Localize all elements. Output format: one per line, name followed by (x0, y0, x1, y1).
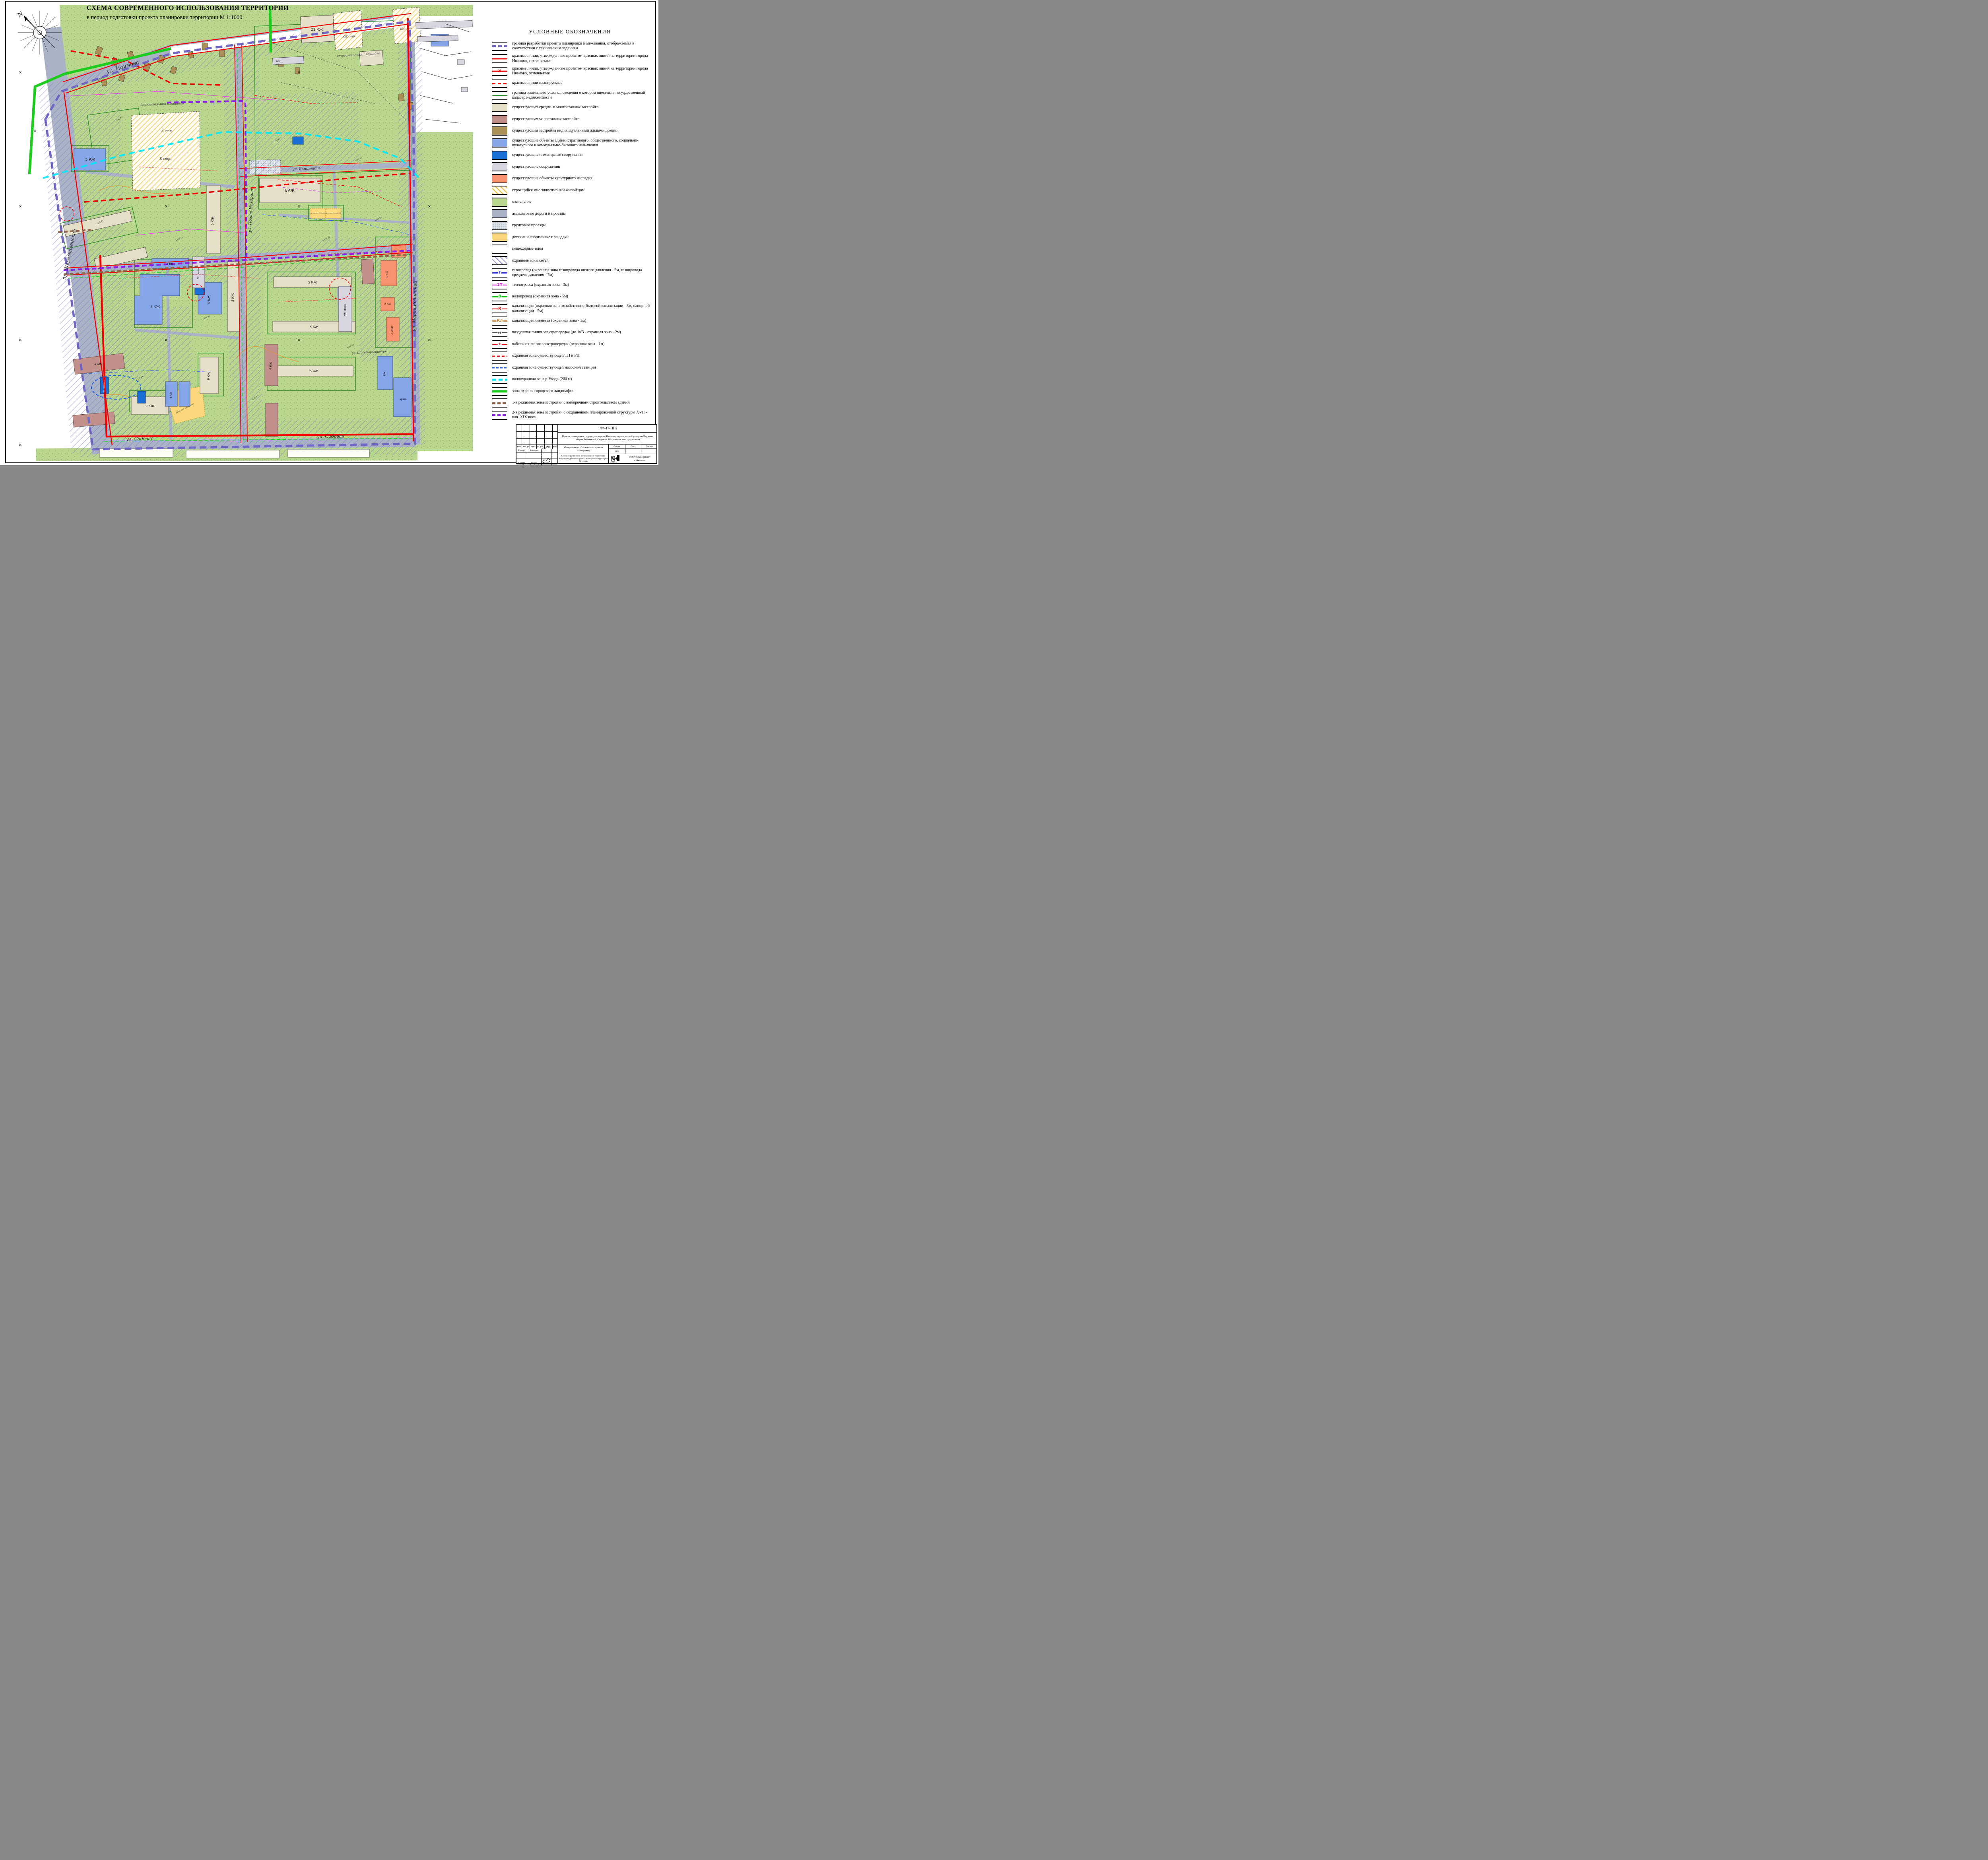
col-list: Лист (530, 445, 536, 449)
name-cell: Седова (527, 461, 542, 464)
red-line-kept-swatch (492, 54, 507, 63)
legend-item: существующая средне- и многоэтажная заст… (492, 103, 654, 112)
legend-item: охранная зона существующей ТП и РП (492, 351, 654, 361)
legend-item: пешеходные зоны (492, 245, 654, 254)
role-cell: ГИП (516, 464, 527, 465)
legend-label: красные линии, утвержденные проектом кра… (512, 66, 654, 76)
legend-label: теплотрасса (охранная зона - 3м) (512, 283, 569, 287)
legend-item: зона охраны городского ландшафта (492, 387, 654, 396)
legend-label: кабельная линия электропередач (охранная… (512, 342, 604, 347)
legend-label: грунтовые проезды (512, 223, 546, 228)
scheme-name: Схема современного использования террито… (558, 454, 609, 464)
project-name: Проект планировки территории города Иван… (558, 433, 657, 445)
water-protection-zone-swatch (492, 375, 507, 384)
asphalt-roads-swatch (492, 209, 507, 218)
company-city: г. Иваново (622, 459, 657, 462)
document-number: 1/04-17-ПП2 (558, 425, 657, 433)
landscape-zone-swatch (492, 387, 507, 396)
map-label: бет. (276, 60, 282, 63)
grid-cross: × (19, 70, 22, 75)
legend-label: канализация (охранная зона хозяйственно-… (512, 304, 654, 314)
grid-cross: × (165, 338, 168, 342)
legend-item: грунтовые проезды (492, 221, 654, 230)
sewer-swatch: К (492, 304, 507, 313)
grid-cross: × (19, 443, 22, 447)
legend-label: детские и спортивные площадки (512, 235, 569, 240)
col-koluch: Кол. уч (522, 445, 530, 449)
legend-item: детские и спортивные площадки (492, 233, 654, 242)
company-logo: СлавПроект (610, 455, 622, 463)
cable-power-swatch: + (492, 340, 507, 349)
legend-item: 2Ттеплотрасса (охранная зона - 3м) (492, 280, 654, 289)
stage-value: ПП (609, 449, 625, 454)
legend-label: 1-я режимная зона застройки с выборочным… (512, 400, 630, 405)
map-label: КН гараж (197, 268, 200, 279)
materials-label: Материалы по обоснованию проекта планиро… (558, 445, 609, 454)
legend-label: озеленение (512, 200, 532, 204)
heritage-swatch (492, 174, 507, 183)
sheets-value (641, 449, 657, 454)
map-label: КН насосная (103, 381, 105, 392)
legend-item: Клканализация ливневая (охранная зона - … (492, 316, 654, 326)
overhead-power-swatch: ↔ (492, 328, 507, 337)
legend-item: красные линии, утвержденные проектом кра… (492, 66, 654, 76)
sheets-label: Листов (641, 445, 657, 448)
legend-label: 2-я режимная зона застройки с сохранение… (512, 410, 654, 420)
legend-label: пешеходные зоны (512, 247, 543, 251)
legend-item: Кканализация (охранная зона хозяйственно… (492, 304, 654, 314)
legend-item: озеленение (492, 198, 654, 207)
map-label: 2 КЖ (384, 303, 391, 306)
sheet-label: Лист (625, 445, 642, 448)
compass-rose-icon (18, 11, 62, 54)
map-label: 4 КЖ (170, 392, 173, 398)
legend-label: охранная зона существующей насосной стан… (512, 365, 596, 370)
legend-item: существующие инженерные сооружения (492, 151, 654, 160)
legend-label: охранные зоны сетей (512, 258, 549, 263)
mid-rise-swatch (492, 103, 507, 112)
map-label: 5 КЖ (85, 158, 95, 162)
project-boundary-swatch (492, 42, 507, 51)
gas-symbol: Г (498, 271, 501, 275)
legend-label: граница земельного участка, сведения о к… (512, 91, 654, 101)
heat-symbol: 2Т (497, 283, 503, 287)
name-cell: Качалова (527, 449, 542, 452)
map-label: КЖ (383, 371, 386, 376)
map-label: детская площадка (326, 212, 342, 214)
playgrounds-swatch (492, 233, 507, 242)
company-logo-icon (610, 455, 622, 462)
sheet-value (625, 449, 642, 454)
legend-label: существующие сооружения (512, 165, 560, 169)
water-pipeline-swatch: В (492, 292, 507, 301)
legend-label: существующие инженерные сооружения (512, 153, 582, 157)
title-block: Изм. Кол. уч Лист № док. Подп. Дата Разр… (516, 424, 657, 464)
map-label: 21 КЖ (311, 28, 323, 32)
legend-item: существующие объекты административного, … (492, 138, 654, 148)
map-label: 5 КЖ (211, 216, 215, 225)
greenery-swatch (492, 198, 507, 207)
legend-label: строящийся многоквартирный жилой дом (512, 188, 584, 193)
legend-label: существующая застройка индивидуальными ж… (512, 128, 619, 133)
legend-item: 1-я режимная зона застройки с выборочным… (492, 398, 654, 408)
col-ndok: № док. (537, 445, 545, 449)
legend-label: водоохранная зона р.Уводь (200 м) (512, 377, 572, 382)
grid-cross: × (428, 338, 431, 342)
map-label: ул. Садовая (316, 433, 344, 439)
map-label: КН гаражи (344, 304, 346, 316)
legend-item: существующая малоэтажная застройка (492, 115, 654, 124)
col-data: Дата (553, 445, 557, 449)
legend-item: существующие объекты культурного наследи… (492, 174, 654, 183)
grid-cross: × (165, 204, 168, 209)
legend-label: воздушная линия электропередач (до 1кВ -… (512, 330, 621, 335)
legend-label: канализация ливневая (охранная зона - 3м… (512, 318, 586, 323)
stage-label: Стадия (609, 445, 625, 448)
role-cell: Н.контр. (516, 461, 527, 464)
under-construction-swatch (492, 186, 507, 195)
overhead-power-symbol: ↔ (497, 330, 502, 335)
grid-cross: × (19, 204, 22, 209)
legend-item: асфальтовые дороги и проезды (492, 209, 654, 218)
map-label: 5 КЖ (231, 293, 235, 302)
legend-label: охранная зона существующей ТП и РП (512, 353, 580, 358)
legend-item: водоохранная зона р.Уводь (200 м) (492, 375, 654, 384)
legend-label: граница разработки проекта планировки и … (512, 41, 654, 51)
map-label: 4 КЖ (269, 362, 273, 370)
name-cell: Подобный (527, 464, 542, 465)
logo-text: СлавПроект (610, 462, 617, 464)
legend-item: Ггазопровод (охранная зона газопровода н… (492, 268, 654, 278)
ground-roads-swatch (492, 221, 507, 230)
stage-grid: Стадия Лист Листов ПП (609, 445, 657, 454)
map-label: 9 КЖ (207, 372, 211, 380)
title-block-revision-grid: Изм. Кол. уч Лист № док. Подп. Дата Разр… (516, 425, 558, 463)
map-label: 5 КЖ (308, 281, 317, 284)
legend-label: существующие объекты культурного наследи… (512, 176, 592, 181)
map-label: К стр. (161, 129, 173, 133)
page-title: СХЕМА СОВРЕМЕННОГО ИСПОЛЬЗОВАНИЯ ТЕРРИТО… (87, 4, 309, 12)
map-label: спортивная площадка (309, 212, 327, 214)
map-label: 5 КЖ (310, 369, 318, 373)
map-label: 2 КН (167, 262, 173, 266)
legend-item: Вводопровод (охранная зона - 5м) (492, 292, 654, 301)
map-label: 3 КЖ (150, 305, 160, 309)
cable-power-symbol: + (498, 342, 502, 346)
grid-cross: × (297, 70, 301, 75)
map-label: 9 КЖ (146, 404, 154, 408)
storm-sewer-swatch: Кл (492, 316, 507, 326)
map-label: К стр. (159, 157, 171, 161)
legend-heading: УСЛОВНЫЕ ОБОЗНАЧЕНИЯ (504, 29, 635, 35)
legend-item: существующая застройка индивидуальными ж… (492, 126, 654, 136)
grid-cross: × (428, 204, 431, 209)
legend-label: водопровод (охранная зона - 5м) (512, 294, 568, 299)
map-label: 2 СМЖ (391, 326, 394, 335)
individual-housing-swatch (492, 126, 507, 136)
grid-cross: × (297, 204, 301, 209)
low-rise-swatch (492, 115, 507, 124)
page-subtitle: в период подготовки проекта планировки т… (87, 14, 309, 21)
legend-label: существующая средне- и многоэтажная заст… (512, 105, 598, 110)
map-label: храм (400, 398, 406, 401)
legend-item: существующие сооружения (492, 162, 654, 171)
grid-cross: × (19, 338, 22, 342)
legend-item: граница земельного участка, сведения о к… (492, 91, 654, 101)
water-symbol: В (498, 295, 501, 299)
legend-item: охранная зона существующей насосной стан… (492, 363, 654, 373)
network-protection-swatch (492, 256, 507, 265)
map-label: 3 КЖ (386, 270, 389, 278)
grid-cross: × (33, 129, 37, 133)
col-izm: Изм. (516, 445, 522, 449)
map-label: 8КЖ (285, 188, 295, 193)
legend-label: существующие объекты административного, … (512, 138, 654, 148)
gas-pipeline-swatch: Г (492, 268, 507, 278)
legend-label: зона охраны городского ландшафта (512, 389, 573, 394)
legend-item: 2-я режимная зона застройки с сохранение… (492, 410, 654, 420)
legend-item: строящийся многоквартирный жилой дом (492, 186, 654, 195)
legend-item: +кабельная линия электропередач (охранна… (492, 340, 654, 349)
legend-label: существующая малоэтажная застройка (512, 117, 579, 122)
regime-zone-1-swatch (492, 398, 507, 408)
company-cell: СлавПроект ООО "СлавПроект" г. Иваново (609, 454, 657, 464)
cadastre-boundary-swatch (492, 91, 507, 100)
map-label: N (16, 10, 25, 19)
regime-zone-2-swatch (492, 411, 507, 420)
legend-label: газопровод (охранная зона газопровода ни… (512, 268, 654, 278)
legend-item: красные линии планируемые (492, 79, 654, 88)
red-line-cancelled-swatch (492, 67, 507, 76)
map-label: 5 КЖ (310, 325, 318, 329)
company-name: ООО "СлавПроект" (622, 456, 657, 459)
pump-station-zone-swatch (492, 363, 507, 373)
engineering-swatch (492, 151, 507, 160)
legend-item: красные линии, утвержденные проектом кра… (492, 54, 654, 64)
legend-item: ↔воздушная линия электропередач (до 1кВ … (492, 328, 654, 337)
legend-item: охранные зоны сетей (492, 256, 654, 265)
legend-label: асфальтовые дороги и проезды (512, 212, 566, 216)
heating-main-swatch: 2Т (492, 280, 507, 289)
map-label: ул. Садовая (126, 436, 153, 441)
structures-swatch (492, 162, 507, 171)
legend-label: красные линии, утвержденные проектом кра… (512, 54, 654, 64)
storm-symbol: Кл (497, 319, 503, 323)
sheet-header: СХЕМА СОВРЕМЕННОГО ИСПОЛЬЗОВАНИЯ ТЕРРИТО… (87, 4, 309, 21)
pedestrian-zones-swatch (492, 245, 507, 254)
role-cell: Разраб. (516, 449, 527, 452)
legend-label: красные линии планируемые (512, 81, 562, 85)
drawing-sheet: .ml{font-family:"DejaVu Sans",sans-serif… (0, 0, 658, 465)
red-line-planned-swatch (492, 79, 507, 88)
grid-cross: × (297, 338, 301, 342)
legend: УСЛОВНЫЕ ОБОЗНАЧЕНИЯ граница разработки … (492, 29, 654, 423)
legend-item: граница разработки проекта планировки и … (492, 41, 654, 51)
tp-zone-swatch (492, 351, 507, 361)
public-objects-swatch (492, 138, 507, 148)
map-label: 4 КЖ (207, 295, 211, 304)
col-podp: Подп. (545, 445, 553, 449)
sewer-symbol: К (498, 307, 502, 311)
